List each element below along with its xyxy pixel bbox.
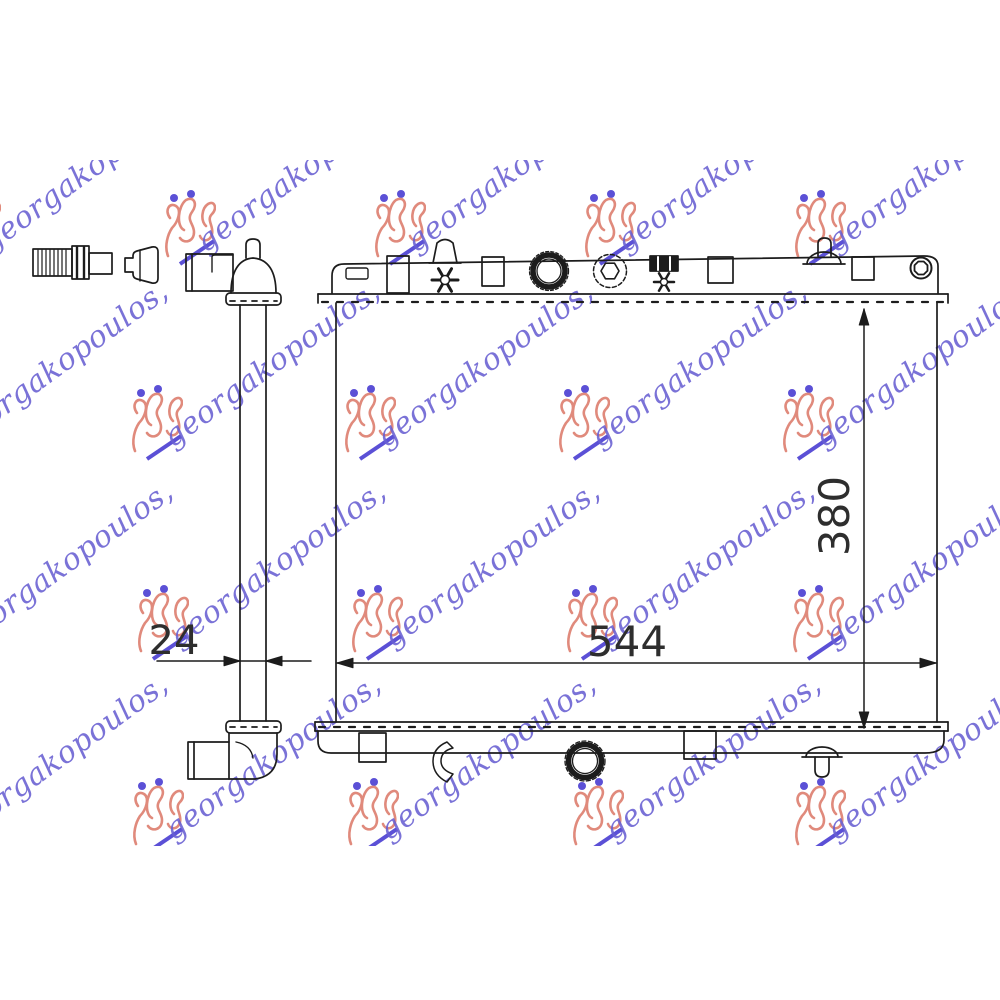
dimension-label-depth: 24 [149, 618, 200, 664]
radiator-technical-drawing: georgakopoulos, georgakopoulos, georgako… [0, 0, 1000, 1000]
mount-grommet-part [125, 247, 158, 283]
dimension-label-width: 544 [587, 617, 667, 666]
dimension-label-height: 380 [810, 476, 859, 556]
radiator-diagram: 544 380 24 [0, 0, 1000, 1000]
dimension-380 [859, 309, 869, 728]
radiator-side-view [186, 239, 281, 779]
drain-plug-part [33, 246, 112, 279]
